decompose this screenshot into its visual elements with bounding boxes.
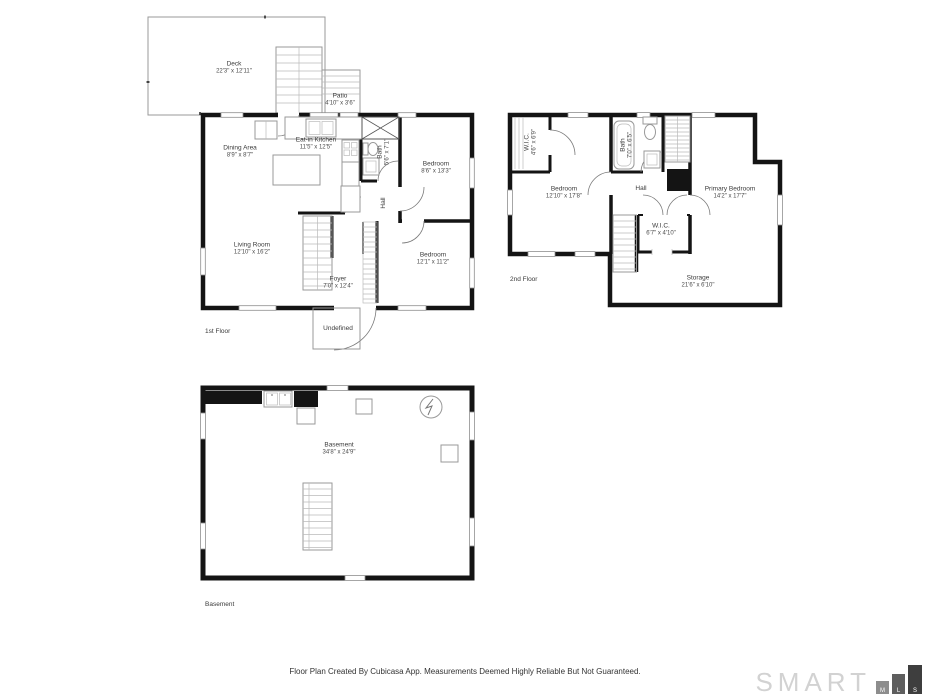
logo-bar-s: S xyxy=(908,665,922,694)
floor-label-basement: Basement xyxy=(205,601,234,608)
stove xyxy=(342,140,359,162)
basement-appliance-3 xyxy=(441,445,458,462)
logo-brand-text: SMART xyxy=(755,671,871,694)
basement-block xyxy=(294,391,318,407)
logo-mls-bars: M L S xyxy=(876,665,922,694)
room-label-bedroom-3: Bedroom12'10" x 17'8" xyxy=(546,186,582,201)
floor-label-2nd: 2nd Floor xyxy=(510,276,537,283)
basement-counter xyxy=(205,391,262,404)
floorplan-page: Deck22'3" x 12'11" Patio4'10" x 3'6" Eat… xyxy=(0,0,930,697)
room-label-dining-area: Dining Area8'9" x 8'7" xyxy=(223,145,257,160)
basement-appliance-1 xyxy=(297,408,315,424)
kitchen-counter-2 xyxy=(342,162,359,186)
deck-stairs xyxy=(276,47,322,113)
floor-label-1st: 1st Floor xyxy=(205,328,230,335)
basement-sink xyxy=(264,391,292,407)
room-label-bedroom-1: Bedroom8'6" x 13'3" xyxy=(421,161,451,176)
room-label-hall-1f: Hall xyxy=(380,197,388,208)
room-label-primary-bedroom: Primary Bedroom14'2" x 17'7" xyxy=(705,186,756,201)
room-label-bath-1f: Bath5'6" x 7'1" xyxy=(377,139,392,165)
basement-appliance-2 xyxy=(356,399,372,414)
logo-bar-m: M xyxy=(876,681,889,694)
room-label-bath-2f: Bath7'0" x 6'5" xyxy=(620,132,635,158)
second-floor-walls xyxy=(510,115,780,305)
smartmls-logo: SMART M L S xyxy=(755,665,922,694)
room-label-deck: Deck22'3" x 12'11" xyxy=(216,61,252,76)
room-label-undefined: Undefined xyxy=(323,325,353,333)
first-floor-plan xyxy=(140,8,485,358)
room-label-wic-1: W.I.C.4'6" x 6'9" xyxy=(524,129,539,155)
dining-table xyxy=(273,155,320,185)
room-label-eat-in-kitchen: Eat-in Kitchen11'5" x 12'5" xyxy=(296,137,336,152)
chimney xyxy=(667,169,690,191)
second-floor-plan xyxy=(500,105,790,310)
water-heater xyxy=(420,396,442,418)
hall-closet xyxy=(665,116,690,162)
room-label-storage: Storage21'6" x 6'10" xyxy=(682,275,715,290)
fridge xyxy=(341,186,360,212)
room-label-living-room: Living Room12'10" x 16'2" xyxy=(234,242,270,257)
bath-sink-2f xyxy=(644,151,660,168)
room-label-bedroom-2: Bedroom12'1" x 11'2" xyxy=(417,252,449,267)
room-label-basement: Basement34'8" x 24'9" xyxy=(323,442,356,457)
room-label-patio: Patio4'10" x 3'6" xyxy=(325,93,355,108)
toilet-2f xyxy=(643,117,657,140)
basement-plan xyxy=(195,383,485,608)
room-label-hall-2f: Hall xyxy=(635,185,646,193)
logo-bar-l: L xyxy=(892,674,905,694)
room-label-wic-2: W.I.C.6'7" x 4'10" xyxy=(646,223,676,238)
room-label-foyer: Foyer7'0" x 12'4" xyxy=(323,276,353,291)
